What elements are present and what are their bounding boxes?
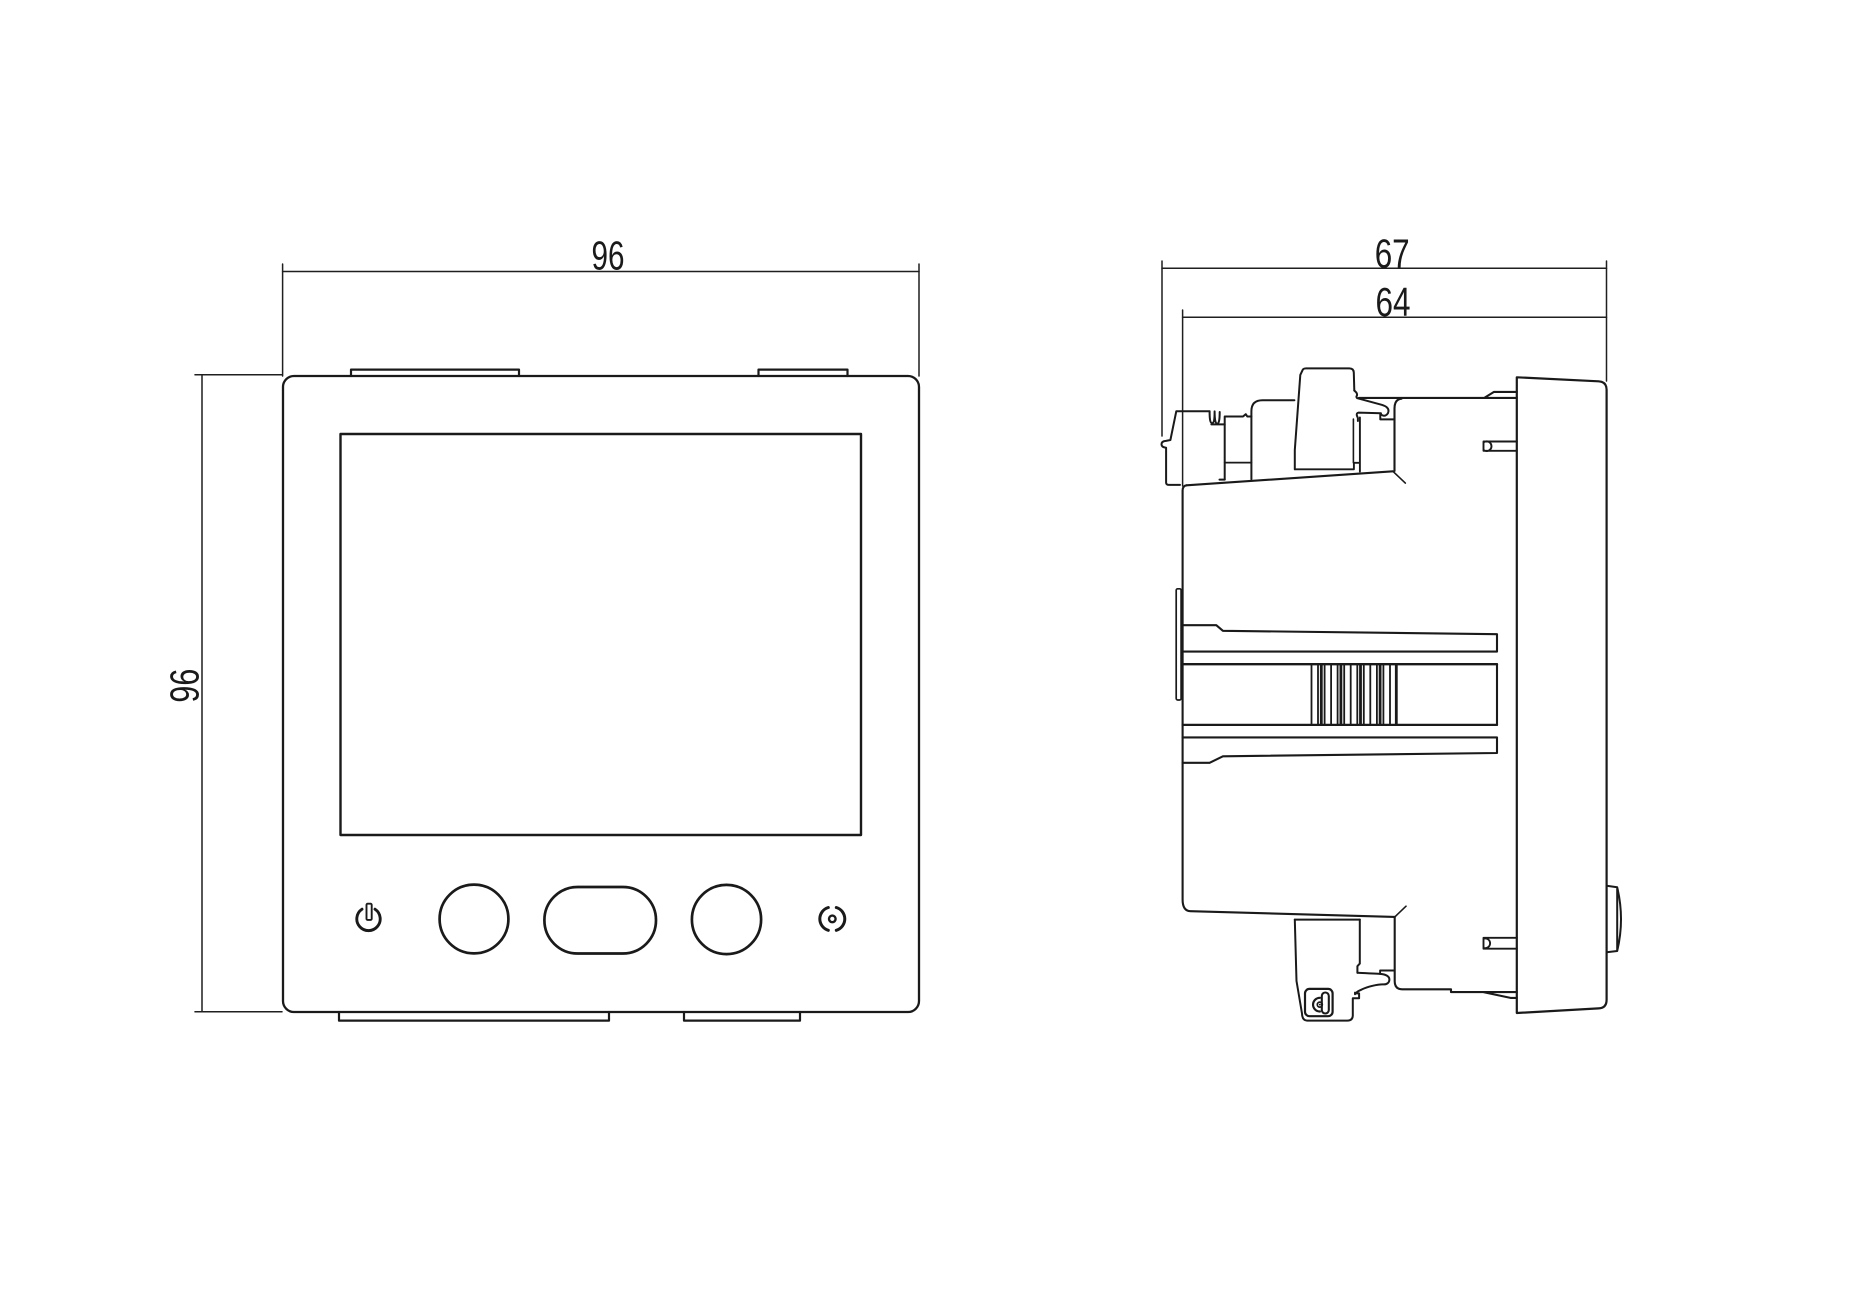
svg-text:67: 67 <box>1375 230 1410 276</box>
svg-text:96: 96 <box>592 232 625 278</box>
svg-text:64: 64 <box>1376 279 1411 325</box>
svg-text:96: 96 <box>162 669 208 703</box>
